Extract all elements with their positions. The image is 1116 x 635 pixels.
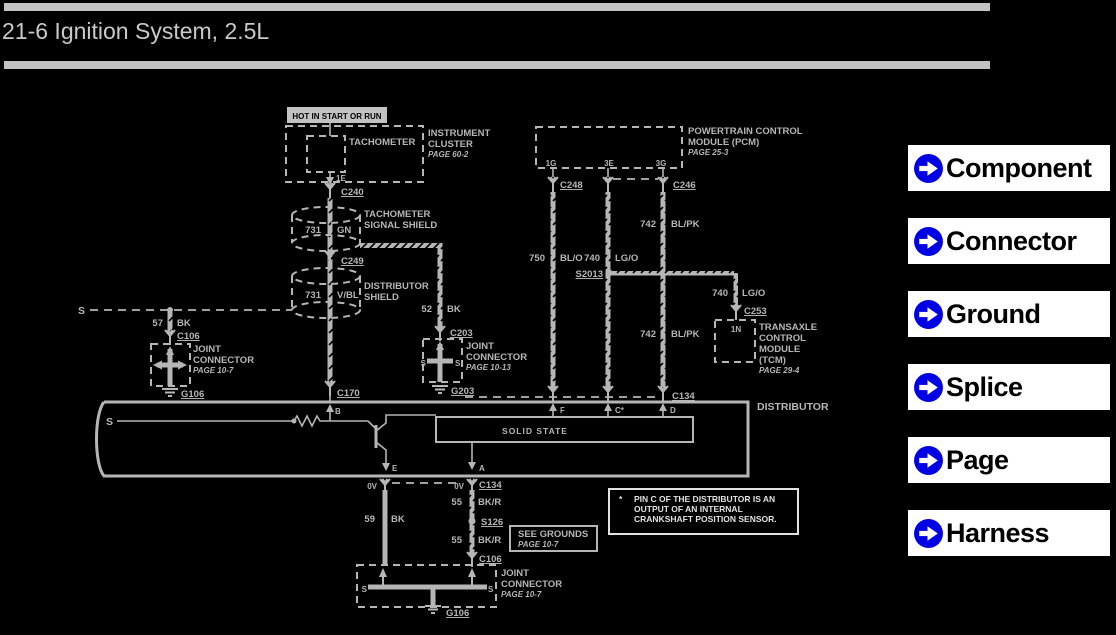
connector-symbol-c134-f[interactable]: [548, 386, 558, 401]
wire-57: [168, 312, 173, 332]
connector-symbol-c134-d[interactable]: [658, 386, 668, 401]
wire-52-horizontal: [360, 243, 442, 248]
connector-label-c106[interactable]: C106: [177, 331, 200, 342]
wire-52-color: BK: [447, 304, 461, 315]
button-label: Connector: [946, 226, 1077, 257]
cluster-page-ref[interactable]: PAGE 60-2: [428, 150, 469, 159]
wire-731a-color: GN: [337, 225, 351, 236]
wire-740-color: LG/O: [615, 253, 638, 264]
pcm-wires: 750 BL/O 740 LG/O 742 BL/PK 742 BL/PK S2…: [529, 192, 765, 388]
pcm-name-1: POWERTRAIN CONTROL: [688, 126, 803, 137]
connector-label-c249[interactable]: C249: [341, 256, 364, 267]
resistor-symbol: [294, 416, 368, 426]
joint3-name-2: CONNECTOR: [501, 579, 562, 590]
solid-state-label: SOLID STATE: [502, 426, 568, 436]
arrow-icon: [913, 299, 944, 330]
connector-label-c246[interactable]: C246: [673, 180, 696, 191]
wire-52-number: 52: [421, 304, 432, 315]
distributor-ground-wires: 0V 0V C134 59 BK 55 BK/R S126 55 BK/R C1…: [357, 479, 597, 619]
wire-740-number: 740: [584, 253, 600, 264]
splice-label-s126[interactable]: S126: [481, 517, 503, 528]
wire-750-color: BL/O: [560, 253, 583, 264]
wire-52-branch: 52 BK C203 S S JOINT CONNECTOR PAGE 10-1…: [360, 243, 527, 397]
ground-symbol-g106[interactable]: [162, 389, 178, 396]
wire-57-number: 57: [152, 318, 163, 329]
wire-750: [551, 192, 556, 388]
see-grounds-title: SEE GROUNDS: [518, 529, 588, 540]
pin-d-label: D: [670, 406, 676, 415]
wire-750-number: 750: [529, 253, 545, 264]
joint2-page-ref[interactable]: PAGE 10-13: [466, 363, 511, 372]
voltage-label-a: 0V: [454, 482, 464, 491]
splice-label-s2013[interactable]: S2013: [576, 269, 603, 280]
wire-742b-number: 742: [640, 329, 656, 340]
button-label: Ground: [946, 299, 1040, 330]
sidebar-button-connector[interactable]: Connector: [908, 218, 1110, 264]
sidebar-button-splice[interactable]: Splice: [908, 364, 1110, 410]
cluster-name-2: CLUSTER: [428, 139, 473, 150]
wire-731b-color: V/BL: [337, 290, 359, 301]
shield1-name-1: TACHOMETER: [364, 209, 430, 220]
arrow-icon: [913, 445, 944, 476]
pcm-pin-3g: 3G: [656, 159, 667, 168]
pin-f-label: F: [560, 406, 565, 415]
shield2-name-2: SHIELD: [364, 292, 399, 303]
wire-742a-color: BL/PK: [671, 219, 700, 230]
connector-label-c248[interactable]: C248: [560, 180, 583, 191]
connector-symbol-c249[interactable]: [325, 251, 335, 266]
connector-label-c106-bottom[interactable]: C106: [479, 554, 502, 565]
pin-b-label: B: [335, 407, 341, 416]
wire-740b-number: 740: [712, 288, 728, 299]
wire-52-vertical: [438, 243, 443, 331]
wire-55a-number: 55: [451, 497, 462, 508]
ground-label-g106[interactable]: G106: [181, 389, 204, 400]
arrow-icon: [913, 372, 944, 403]
tcm-name-3: MODULE: [759, 344, 800, 355]
splice-dot-s2013[interactable]: [606, 270, 613, 277]
tcm-page-ref[interactable]: PAGE 29-4: [759, 366, 800, 375]
button-label: Splice: [946, 372, 1023, 403]
wire-59-number: 59: [364, 514, 375, 525]
sidebar-button-ground[interactable]: Ground: [908, 291, 1110, 337]
shield2-name-1: DISTRIBUTOR: [364, 281, 429, 292]
ground-label-g106-bottom[interactable]: G106: [446, 608, 469, 619]
tachometer-label: TACHOMETER: [349, 137, 415, 148]
connector-symbol-c248[interactable]: [548, 177, 558, 192]
left-ground-branch: S 57 BK C106 JOINT CONNECTOR PAGE 10-7 G…: [78, 305, 292, 400]
distributor-label: DISTRIBUTOR: [757, 401, 829, 413]
wire-740b-color: LG/O: [742, 288, 765, 299]
arrow-icon: [913, 153, 944, 184]
connector-label-c240[interactable]: C240: [341, 187, 364, 198]
arrow-icon: [913, 226, 944, 257]
sidebar-button-harness[interactable]: Harness: [908, 510, 1110, 556]
tcm-name-4: (TCM): [759, 355, 786, 366]
connector-symbol-c246-a[interactable]: [603, 177, 613, 192]
joint1-name-1: JOINT: [193, 344, 221, 355]
button-label: Component: [946, 153, 1091, 184]
app-window: 21-6 Ignition System, 2.5L HOT IN START …: [0, 0, 1116, 635]
joint1-name-2: CONNECTOR: [193, 355, 254, 366]
connector-symbol-c134-c[interactable]: [603, 386, 613, 401]
tcm-pin-1n: 1N: [731, 325, 741, 334]
see-grounds-page-ref[interactable]: PAGE 10-7: [518, 540, 559, 549]
connector-symbol-c246-b[interactable]: [658, 177, 668, 192]
wire-continuation-s: S: [78, 305, 85, 317]
wire-742b-color: BL/PK: [671, 329, 700, 340]
footnote-line-2: OUTPUT OF AN INTERNAL: [634, 504, 743, 514]
joint2-name-1: JOINT: [466, 341, 494, 352]
footnote-line-1: PIN C OF THE DISTRIBUTOR IS AN: [634, 494, 775, 504]
splice-symbol-s: S: [421, 359, 427, 368]
arrow-icon: [913, 518, 944, 549]
splice-symbol-s: S: [488, 585, 494, 594]
connector-symbol-c106[interactable]: [165, 330, 175, 345]
connector-symbol-c240[interactable]: [325, 183, 335, 198]
tachometer-box: [307, 136, 345, 172]
button-label: Page: [946, 445, 1009, 476]
wire-59: [383, 490, 388, 566]
wire-742: [661, 192, 666, 388]
sidebar-button-page[interactable]: Page: [908, 437, 1110, 483]
joint2-name-2: CONNECTOR: [466, 352, 527, 363]
wire-59-color: BK: [391, 514, 405, 525]
wire-55a-color: BK/R: [478, 497, 501, 508]
splice-dot-s126[interactable]: [469, 518, 476, 525]
tcm-name-2: CONTROL: [759, 333, 806, 344]
wire-740-to-tcm-horizontal: [612, 271, 734, 276]
joint1-page-ref[interactable]: PAGE 10-7: [193, 366, 234, 375]
pcm-module: POWERTRAIN CONTROL MODULE (PCM) PAGE 25-…: [536, 126, 803, 192]
pin-a-label: A: [479, 464, 485, 473]
hot-banner-label: HOT IN START OR RUN: [292, 112, 381, 121]
pin-c-label: C*: [615, 406, 625, 415]
button-label: Harness: [946, 518, 1049, 549]
connector-symbol-c253[interactable]: [731, 305, 741, 320]
wire-55b-number: 55: [451, 535, 462, 546]
wire-731b-number: 731: [305, 290, 322, 301]
connector-label-c253[interactable]: C253: [744, 306, 767, 317]
splice-symbol-s: S: [362, 585, 368, 594]
wire-740-to-tcm-vertical: [734, 273, 739, 309]
wire-57-color: BK: [177, 318, 191, 329]
connector-label-c203[interactable]: C203: [450, 328, 473, 339]
wire-continuation-s: S: [106, 416, 113, 428]
pcm-page-ref[interactable]: PAGE 25-3: [688, 148, 729, 157]
tcm-module: C253 1N TRANSAXLE CONTROL MODULE (TCM) P…: [715, 305, 817, 375]
ground-symbol-g203[interactable]: [432, 386, 448, 393]
transistor-collector: [376, 415, 436, 431]
shield1-name-2: SIGNAL SHIELD: [364, 220, 437, 231]
instrument-cluster: HOT IN START OR RUN TACHOMETER INSTRUMEN…: [286, 107, 490, 198]
instrument-cluster-box: [286, 126, 423, 182]
joint3-name-1: JOINT: [501, 568, 529, 579]
pcm-pin-1g: 1G: [546, 159, 557, 168]
distributor-shield: 731 V/BL DISTRIBUTOR SHIELD: [292, 268, 429, 318]
wire-740: [606, 192, 611, 388]
distributor-box: [97, 402, 749, 476]
splice-symbol-s: S: [455, 359, 461, 368]
joint3-page-ref[interactable]: PAGE 10-7: [501, 590, 542, 599]
wire-731: [328, 198, 333, 382]
footnote-box: * PIN C OF THE DISTRIBUTOR IS AN OUTPUT …: [609, 489, 798, 534]
pin-e-label: E: [392, 464, 398, 473]
connector-label-c170[interactable]: C170: [337, 388, 360, 399]
pcm-pin-3e: 3E: [604, 159, 614, 168]
voltage-label-e: 0V: [367, 482, 377, 491]
tcm-name-1: TRANSAXLE: [759, 322, 817, 333]
ground-label-g203[interactable]: G203: [451, 386, 474, 397]
connector-label-c134-bottom[interactable]: C134: [479, 480, 502, 491]
footnote-line-3: CRANKSHAFT POSITION SENSOR.: [634, 514, 777, 524]
pcm-name-2: MODULE (PCM): [688, 137, 759, 148]
connector-label-c134-top[interactable]: C134: [672, 391, 695, 402]
wire-742a-number: 742: [640, 219, 656, 230]
wire-55b-color: BK/R: [478, 535, 501, 546]
cluster-name-1: INSTRUMENT: [428, 128, 490, 139]
sidebar-button-component[interactable]: Component: [908, 145, 1110, 191]
pin-1e-label: 1E: [336, 174, 346, 183]
wire-731a-number: 731: [305, 225, 322, 236]
